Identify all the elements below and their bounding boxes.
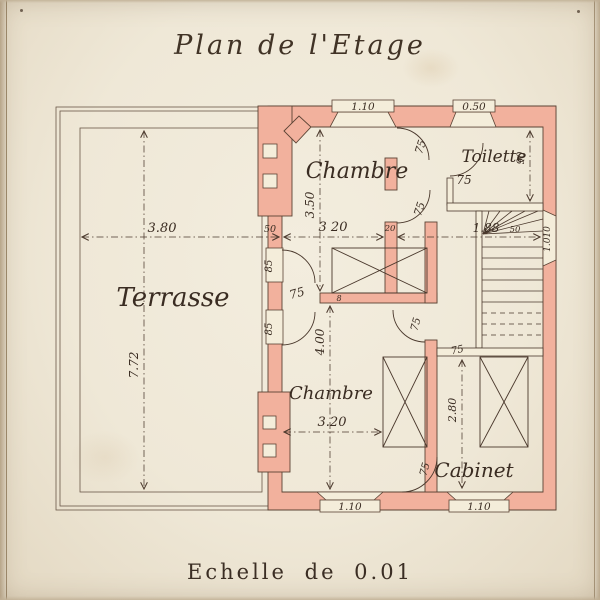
thin-walls [437,178,543,356]
room-label-cabinet: Cabinet [434,458,514,482]
door-label-85: 85 [264,260,275,273]
dim-toilette-width: 75 [456,173,471,187]
dim-right-wall: 50 [510,225,521,235]
window-label: 0.50 [462,101,486,113]
dim-right-window: 1.010 [543,226,553,252]
dim-terrace-width: 3.80 [148,221,177,236]
dim-wall-8: 8 [336,294,341,303]
window-label: 1.10 [351,101,375,113]
flue-hole [263,144,277,158]
door-arc [282,250,315,283]
dim-toilette-depth: 90 [516,151,527,164]
flue-hole [263,416,276,429]
dim-terrace-wall: 50 [264,224,276,235]
dim-terrace-depth: 7.72 [127,352,141,379]
room-label-terrasse: Terrasse [116,283,229,313]
flue-hole [263,444,276,457]
door-label-75: 75 [288,284,306,301]
room-label-chambre-upper: Chambre [306,159,409,184]
dim-chambre-upper-depth: 3.50 [303,191,317,218]
window-top-right [450,112,496,127]
window-top-left [330,112,396,127]
door-label-75: 75 [412,138,429,155]
room-label-chambre-lower: Chambre [289,383,373,404]
dim-cabinet-depth: 2.80 [446,398,459,424]
dim-chambre-upper-width: 3 20 [319,220,348,235]
dim-chambre-lower-depth: 4.00 [313,328,327,356]
door-label-85: 85 [264,323,275,336]
floor-plan: Terrasse Chambre Toilette Chambre Cabine… [0,0,600,600]
dim-hall-width: 1.88 [473,221,500,235]
window-label: 1.10 [338,501,362,513]
door-label-75: 75 [409,316,424,332]
window-label: 1.10 [467,501,491,513]
flue-hole [263,174,277,188]
dim-wall-20: 20 [384,224,396,234]
door-label-75: 75 [411,200,428,217]
door-arc [282,312,315,345]
dim-chambre-lower-width: 3.20 [318,415,347,430]
window-bottom-right [447,492,513,500]
window-bottom-left [317,492,383,500]
